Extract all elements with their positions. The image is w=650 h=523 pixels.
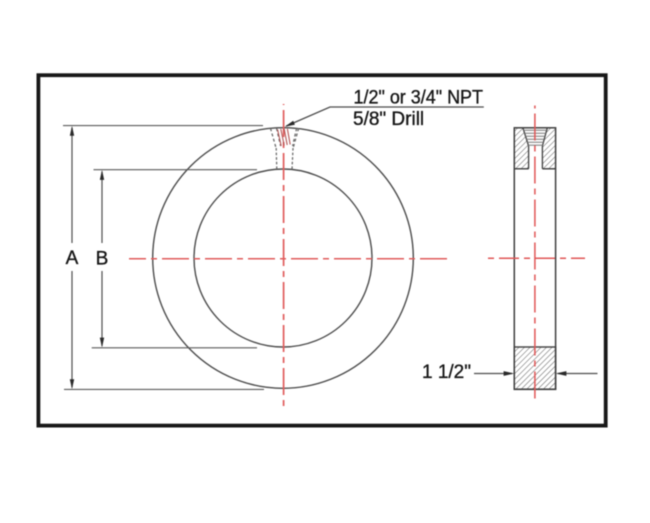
svg-text:5/8" Drill: 5/8" Drill [353,109,424,130]
svg-text:B: B [96,248,109,269]
svg-text:1 1/2": 1 1/2" [422,362,471,383]
svg-text:A: A [66,248,79,269]
svg-text:1/2" or 3/4" NPT: 1/2" or 3/4" NPT [354,88,484,109]
